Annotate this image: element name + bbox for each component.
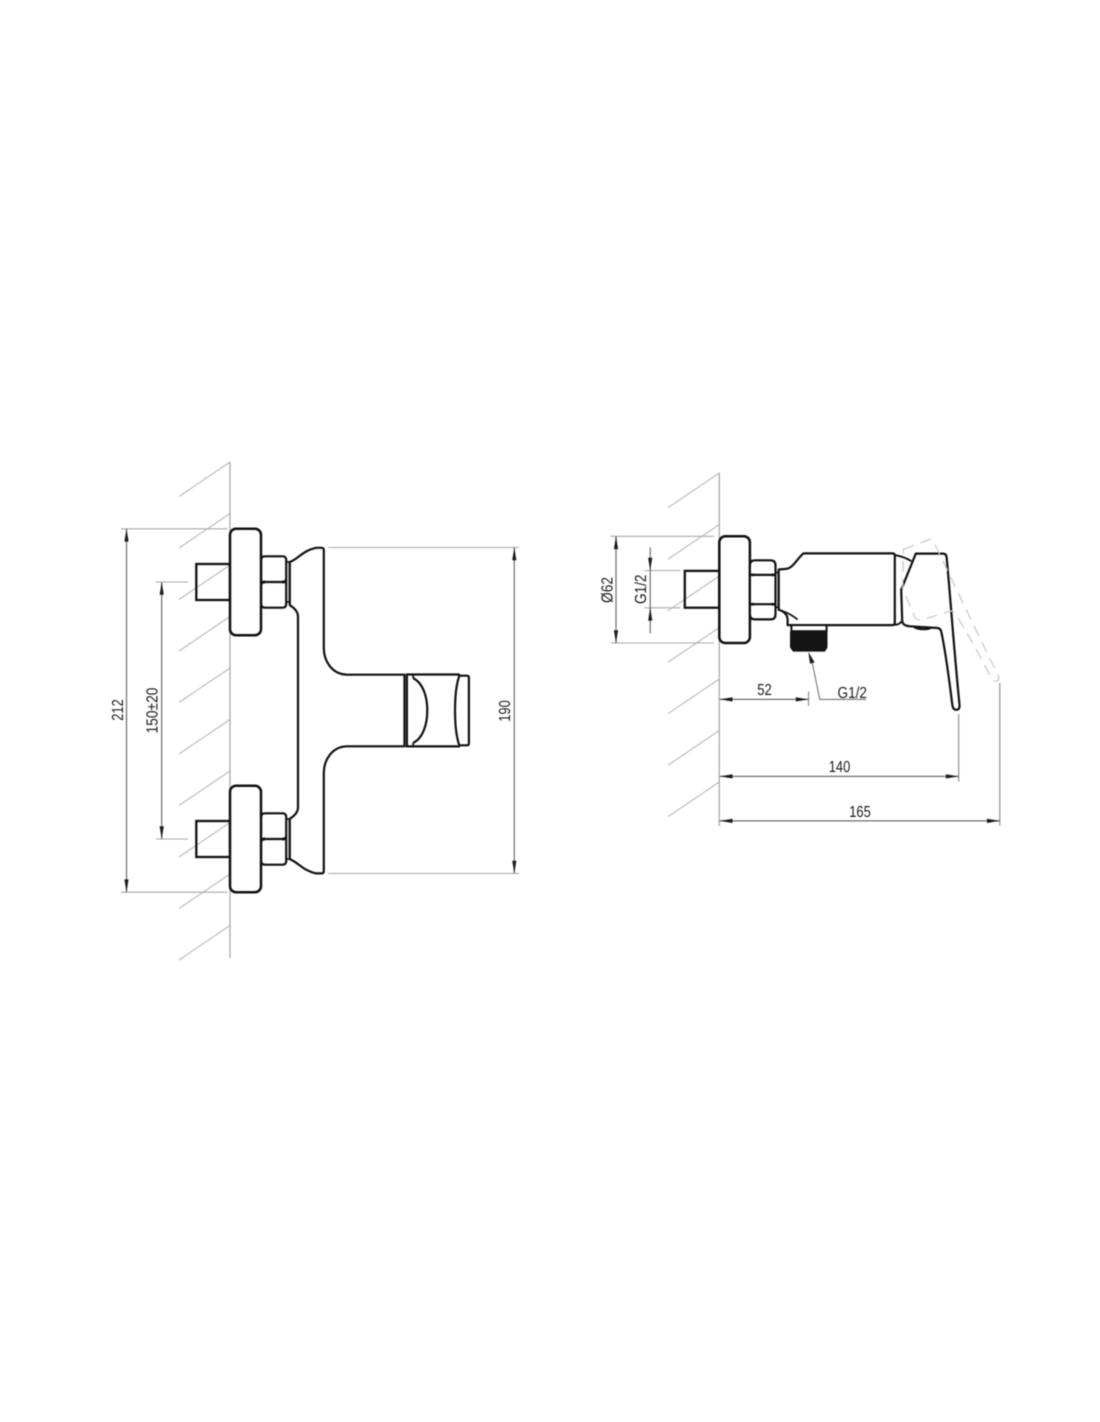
- svg-text:G1/2: G1/2: [633, 574, 650, 604]
- svg-text:150±20: 150±20: [144, 687, 161, 733]
- svg-text:52: 52: [757, 682, 772, 699]
- svg-text:Ø62: Ø62: [599, 577, 616, 603]
- svg-text:140: 140: [829, 759, 851, 776]
- svg-text:G1/2: G1/2: [837, 685, 867, 702]
- svg-text:212: 212: [110, 699, 127, 721]
- svg-text:190: 190: [497, 700, 514, 722]
- svg-text:165: 165: [849, 804, 871, 821]
